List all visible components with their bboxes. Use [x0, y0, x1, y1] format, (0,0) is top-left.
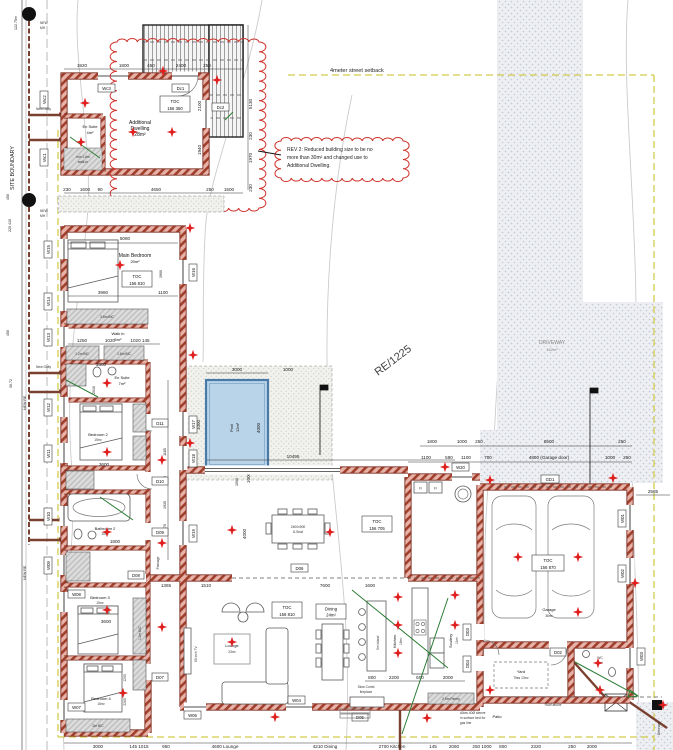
- svg-text:W07: W07: [72, 705, 81, 710]
- tag-dc1: Dc1: [172, 84, 189, 92]
- boundary-3072: 30.72: [9, 379, 13, 388]
- new-mh-top-2: MH: [40, 26, 46, 30]
- fireplace-unit: [350, 697, 384, 707]
- svg-text:156 870: 156 870: [540, 565, 556, 570]
- dim-230a: 230: [248, 132, 253, 140]
- tag-wc2: Wc2: [40, 91, 48, 108]
- main-bedroom-area: 20m²: [130, 259, 140, 264]
- tag-w19: W19: [189, 525, 197, 542]
- sewer-stubs: [29, 115, 61, 540]
- tag-w20: W20: [452, 463, 469, 471]
- svg-text:D11: D11: [156, 421, 164, 426]
- dim-b-4600: 4600 Lounge: [212, 744, 239, 749]
- rev-note-line3: Additional Dwelling.: [287, 163, 331, 169]
- dim-1920: 1920: [77, 63, 88, 68]
- walkin-area: 5m²: [115, 337, 123, 342]
- dim-10495: 10495: [287, 454, 300, 459]
- bed2-robe: [133, 436, 146, 460]
- dim-7600: 7600: [320, 583, 331, 588]
- new-mh-top-1: NEW: [40, 21, 49, 25]
- tag-d11: D11: [152, 419, 168, 427]
- dwelling-walkin-2: walk-in: [78, 160, 88, 164]
- svg-text:W08: W08: [72, 592, 81, 597]
- svg-text:D05: D05: [356, 715, 364, 720]
- boundary-450a: 450: [6, 194, 10, 200]
- garage-area: 36m²: [545, 614, 553, 618]
- great-room: 1365 1510 7600 1600 4000 1000 2400x900 8…: [161, 478, 502, 734]
- svg-text:W17: W17: [191, 419, 196, 428]
- driveway-apron: [480, 302, 663, 483]
- dim-1510: 1510: [201, 583, 212, 588]
- svg-text:W10: W10: [46, 511, 51, 520]
- floor-plan-drawing: DRIVEWAY 162m² 4meter street setback 122…: [0, 0, 673, 750]
- new-gully-note-b: New Gully: [36, 365, 51, 369]
- tag-w18: W18: [189, 450, 197, 467]
- dim-pool-4000: 4000: [256, 422, 261, 433]
- island-label: 5m Island: [376, 636, 380, 650]
- new-re-label-b: NEW RE: [23, 565, 27, 580]
- fireplace-label-2: fireplace: [360, 690, 373, 694]
- svg-text:156 810: 156 810: [129, 281, 145, 286]
- kitchen-counter: [412, 588, 428, 674]
- dim-gar-1800: 1800: [427, 439, 438, 444]
- toc-box-garage: TOC 156 870: [532, 555, 564, 571]
- tag-d10: D10: [152, 477, 168, 485]
- dim-gar-8500: 8500: [544, 439, 555, 444]
- manhole-mid: [22, 193, 36, 207]
- site-boundary-label: SITE BOUNDARY: [10, 146, 16, 190]
- svg-text:W15: W15: [46, 244, 51, 253]
- svg-text:D09: D09: [156, 530, 164, 535]
- svg-text:TOC: TOC: [283, 605, 292, 610]
- tag-wc1: Wc1: [40, 149, 48, 166]
- svg-text:TOC: TOC: [171, 99, 180, 104]
- toc-box-main: TOC 156 810: [122, 271, 152, 287]
- tag-w13: W13: [44, 329, 52, 346]
- dim-230b: 230: [248, 184, 253, 192]
- bathroom2-label: Bathroom 2: [95, 526, 116, 531]
- svg-text:W03: W03: [639, 651, 644, 660]
- dim-kit-2200: 2200: [389, 675, 400, 680]
- ensuite-toilet: [93, 367, 101, 377]
- patio-label: Patio: [492, 714, 502, 719]
- svg-text:W06: W06: [188, 713, 197, 718]
- dim-b-2060: 2060: [449, 744, 460, 749]
- scullery-sink: [455, 486, 471, 502]
- pool-area-label: 12m²: [235, 422, 240, 432]
- dim-5080: 5080: [120, 236, 131, 241]
- dim-3900: 3900: [159, 270, 163, 278]
- tag-d04: D04: [463, 656, 471, 672]
- bedroom4-area: 15m²: [97, 702, 105, 706]
- dim-b-145-1015: 145 1015: [129, 744, 149, 749]
- dim-b-800: 800: [499, 744, 507, 749]
- svg-text:TOC: TOC: [544, 558, 553, 563]
- dwelling-ensuite-2: 4m²: [87, 130, 95, 135]
- tag-w08: W08: [68, 590, 85, 598]
- dim-dwb-1500: 1500: [224, 187, 235, 192]
- dim-3980: 3980: [98, 290, 109, 295]
- bedroom2-label: Bedroom 2: [88, 432, 108, 437]
- dim-5130: 5130: [248, 98, 253, 109]
- svg-text:156 705: 156 705: [369, 526, 385, 531]
- roof-above-label: Roof above: [545, 703, 562, 707]
- svg-text:D03: D03: [465, 627, 470, 635]
- dim-1000-great: 1000: [235, 478, 239, 486]
- tag-gd1: GD1: [541, 475, 559, 483]
- dining-label-box: Dining 24m²: [316, 604, 346, 619]
- svg-text:GD1: GD1: [546, 477, 555, 482]
- dim-gar2-4800: 4800 (Garage door): [529, 455, 570, 460]
- walkway-strip: [58, 196, 224, 212]
- dim-2010: 2010: [92, 386, 96, 394]
- svg-text:Dc1: Dc1: [177, 86, 185, 91]
- bed2-linen: [133, 404, 146, 432]
- svg-text:Wc3: Wc3: [102, 86, 111, 91]
- dim-250: 250: [203, 63, 211, 68]
- boundary-length: 122.75m: [14, 16, 18, 30]
- tag-d02: D02: [550, 648, 566, 656]
- dim-dwb-1600: 1600: [80, 187, 91, 192]
- bed-3: [78, 606, 118, 654]
- svg-text:156 810: 156 810: [279, 612, 295, 617]
- tag-dc2: Dc2: [212, 103, 229, 111]
- dim-dwb-250: 250: [206, 187, 214, 192]
- dim-gar2-1100b: 1100: [461, 455, 471, 460]
- rev-note-line1: REV 2: Reduced building size to be no: [287, 147, 373, 153]
- bic-2m-label: 2m BIC: [93, 724, 105, 728]
- table-seat-label: 8-Seat: [293, 530, 303, 534]
- dim-1800-bath: 1800: [110, 539, 121, 544]
- yard-tile-area: [494, 662, 548, 688]
- dim-gar-250b: 250: [618, 439, 626, 444]
- dwelling-walkin-1: min 1.6m: [76, 155, 90, 159]
- gas-note-3: gas line: [460, 721, 472, 725]
- new-mh-mid-2: MH: [40, 214, 46, 218]
- tag-w06: W06: [184, 711, 201, 719]
- svg-text:W09: W09: [46, 560, 51, 569]
- bottom-dimensions: 3000 145 1015 950 4600 Lounge 4210 Dinin…: [64, 743, 632, 749]
- svg-text:W16: W16: [191, 267, 196, 276]
- dim-4000: 4000: [242, 528, 247, 539]
- svg-text:Wc1: Wc1: [42, 153, 47, 162]
- bed4-bic: [133, 660, 146, 690]
- shower-strip: [66, 471, 94, 489]
- dim-3600-bed2: 3600: [99, 462, 110, 467]
- new-mh-mid-1: NEW: [40, 209, 49, 213]
- stool-3: [359, 639, 366, 646]
- dim-b-950: 950: [162, 744, 170, 749]
- dim-b-3000: 3000: [93, 744, 104, 749]
- tag-w11: W11: [44, 445, 52, 462]
- tag-d03: D03: [463, 624, 471, 640]
- svg-text:W02: W02: [620, 568, 625, 577]
- dim-dwb-90: 90: [97, 187, 103, 192]
- dim-2585: 2585: [648, 489, 659, 494]
- bath-tub: [68, 494, 130, 521]
- dim-1020: 1020: [105, 338, 116, 343]
- svg-text:D07: D07: [156, 675, 164, 680]
- floor-plan-page: DRIVEWAY 162m² 4meter street setback 122…: [0, 0, 673, 750]
- bedroom4-label: Bedroom 4: [91, 696, 111, 701]
- bath-basin: [88, 531, 96, 539]
- svg-text:W13: W13: [46, 332, 51, 341]
- svg-text:W12: W12: [46, 402, 51, 411]
- tag-w03: W03: [637, 648, 645, 665]
- bed-main: [68, 240, 118, 302]
- tag-w02: W02: [618, 565, 626, 582]
- scullery-label: Scullery: [448, 634, 453, 648]
- ensuite-label: En Suite: [114, 375, 130, 380]
- dim-1600: 1600: [365, 583, 376, 588]
- dim-450: 450: [147, 63, 155, 68]
- dwelling-name-3: 28m²: [134, 132, 146, 138]
- tag-d09: D09: [152, 528, 168, 536]
- sofa-long: [222, 682, 288, 704]
- svg-text:156 350: 156 350: [167, 106, 183, 111]
- svg-text:D10: D10: [156, 479, 164, 484]
- passage-label: Passage: [156, 556, 160, 569]
- table-size-label: 2400x900: [291, 525, 306, 529]
- tag-w01: W01: [618, 510, 626, 527]
- dim-gar2-1100a: 1100: [421, 455, 431, 460]
- bath-toilet: [74, 529, 82, 539]
- dim-3300: 3300: [96, 362, 107, 367]
- pantry-label: 2.5m Pantry: [442, 697, 460, 701]
- stool-1: [359, 609, 366, 616]
- svg-text:W01: W01: [620, 513, 625, 522]
- toc-box-dwelling: TOC 156 350: [160, 96, 190, 112]
- dim-b-2000: 2000: [587, 744, 598, 749]
- armchair-1: [222, 603, 240, 612]
- armchair-2: [246, 603, 264, 612]
- lounge-area: 23m²: [228, 650, 236, 654]
- svg-text:D04: D04: [465, 659, 470, 667]
- dim-1020-145: 1020 145: [130, 338, 150, 343]
- rev-note-line2: more than 30m² and changed use to: [287, 155, 368, 161]
- tag-w04: W04: [288, 696, 305, 704]
- tag-d08: D08: [128, 571, 144, 579]
- dim-gar2-250: 250: [623, 455, 631, 460]
- dim-3600-bed3: 3600: [101, 619, 112, 624]
- scullery-area: 11m²: [455, 636, 459, 644]
- dim-dwb-4650: 4650: [151, 187, 162, 192]
- bedroom3-label: Bedroom 3: [90, 595, 110, 600]
- ensuite-basin: [108, 367, 116, 375]
- bedroom3-area: 15m²: [96, 601, 104, 605]
- tag-wc3: Wc3: [98, 84, 115, 92]
- pool-label: Pool: [229, 424, 234, 432]
- toc-box-living: TOC 156 705: [362, 516, 392, 532]
- tag-w15: W15: [44, 241, 52, 258]
- dim-b-250: 250: [568, 744, 576, 749]
- tag-w14: W14: [44, 293, 52, 310]
- svg-text:W14: W14: [46, 296, 51, 305]
- dim-2285: 2285: [123, 698, 127, 706]
- dining-table-8seat: [266, 509, 330, 549]
- dim-pool-1000a: 1000: [283, 367, 294, 372]
- stool-2: [359, 624, 366, 631]
- tv-label: 65 inch TV: [194, 645, 198, 662]
- dim-b-250-1000: 250 1000: [472, 744, 492, 749]
- side-table: [238, 612, 248, 622]
- tag-w07: W07: [68, 703, 85, 711]
- kitchen-area: 16m²: [399, 637, 403, 645]
- driveway-area: DRIVEWAY 162m²: [480, 0, 673, 750]
- svg-text:W04: W04: [292, 698, 301, 703]
- tag-w09: W09: [44, 557, 52, 574]
- tv-unit: [184, 628, 191, 674]
- driveway-area-label: 162m²: [546, 347, 558, 352]
- wc-basin: [583, 651, 590, 658]
- fireplace-label-1: Slow Comb: [358, 685, 375, 689]
- manhole-top: [22, 7, 36, 21]
- svg-text:24m²: 24m²: [326, 613, 336, 618]
- dim-gar-250a: 250: [475, 439, 483, 444]
- svg-text:TOC: TOC: [133, 274, 142, 279]
- bed3-bic: [133, 598, 146, 654]
- svg-text:W19: W19: [191, 528, 196, 537]
- bedroom2-area: 15m²: [94, 438, 102, 442]
- dim-kit-2000: 2000: [443, 675, 454, 680]
- yard-label: Yard: [517, 669, 525, 674]
- dim-2100: 2100: [197, 100, 202, 111]
- tag-d07: D07: [152, 673, 168, 681]
- dim-gar2-1000: 1000: [605, 455, 616, 460]
- dim-1100: 1100: [158, 290, 168, 295]
- svg-text:D08: D08: [132, 573, 140, 578]
- dim-gar2-590: 590: [445, 455, 453, 460]
- ensuite-shower: [66, 364, 86, 386]
- street-setback-label: 4meter street setback: [330, 68, 384, 74]
- svg-text:Dining: Dining: [325, 607, 338, 612]
- dim-east-1185: 1185: [163, 448, 167, 456]
- svg-text:TOC: TOC: [373, 519, 382, 524]
- walkin-label: Walk in: [112, 331, 125, 336]
- tag-w10: W10: [44, 508, 52, 525]
- gas-note-1: Allow 40Ø sleeve: [460, 711, 486, 715]
- dim-gar-1000: 1000: [457, 439, 468, 444]
- dim-b-145: 145: [429, 744, 437, 749]
- site-boundary: 122.75m SITE BOUNDARY 450 220 410 450 30…: [6, 0, 47, 750]
- kitchen-label: Kitchen: [392, 635, 397, 648]
- dim-kit-800: 800: [368, 675, 376, 680]
- dim-1200: 1200: [123, 674, 127, 682]
- dining-table-vertical: [316, 624, 349, 680]
- dim-b-2320: 2320: [531, 744, 542, 749]
- sofa-chaise: [266, 628, 288, 684]
- boundary-450b: 450: [6, 330, 10, 336]
- dim-1940: 1940: [197, 144, 202, 155]
- garage-label: Garage: [542, 607, 556, 612]
- svg-text:W18: W18: [191, 453, 196, 462]
- dwelling-ensuite-1: En Suite: [82, 124, 98, 129]
- dim-east-1935: 1935: [163, 501, 167, 509]
- new-re-label-a: NEW RE: [23, 395, 27, 410]
- gas-note-2: in surface bed for: [460, 716, 486, 720]
- bic-12-label: 1.2m BIC: [75, 352, 89, 356]
- driveway-side-note: Driveway: [657, 721, 661, 735]
- tag-d06: D06: [291, 564, 308, 572]
- svg-text:Wc2: Wc2: [42, 95, 47, 104]
- dim-1250: 1250: [77, 338, 88, 343]
- boundary-220-410: 220 410: [8, 219, 12, 232]
- dim-b-2700: 2700 Kitchen: [379, 744, 406, 749]
- dim-gar2-700: 700: [484, 455, 492, 460]
- dim-pool-3000: 3000: [232, 367, 243, 372]
- utility-counter: [66, 552, 90, 581]
- tag-w16: W16: [189, 264, 197, 281]
- tag-w12: W12: [44, 399, 52, 416]
- svg-text:D06: D06: [296, 566, 304, 571]
- svg-text:Dc2: Dc2: [217, 105, 225, 110]
- driveway-label: DRIVEWAY: [539, 340, 566, 346]
- dim-b-4210: 4210 Dining: [313, 744, 338, 749]
- toc-box-lounge: TOC 156 810: [272, 602, 302, 618]
- dwelling-walkin-shower: [64, 148, 102, 170]
- dim-dwb-230: 230: [63, 187, 71, 192]
- yard-area: Tiles 13m²: [513, 676, 529, 680]
- erf-number: RE/1225: [373, 343, 414, 378]
- ensuite-area: 7m²: [119, 381, 127, 386]
- svg-text:D02: D02: [554, 650, 562, 655]
- svg-text:W20: W20: [456, 465, 465, 470]
- dim-2400: 2400: [176, 63, 187, 68]
- bic-36-label: 3.6m BIC: [100, 315, 114, 319]
- bic-18-label: 1.8m BIC: [117, 352, 131, 356]
- bed3-bic-label: 1.2m BIC: [138, 626, 142, 640]
- wc-toilet: [609, 668, 616, 677]
- svg-text:W11: W11: [46, 449, 51, 458]
- dim-1365: 1365: [161, 583, 172, 588]
- tag-w17: W17: [189, 416, 197, 433]
- dim-1970: 1970: [248, 152, 253, 163]
- driveway-strip: [497, 0, 583, 302]
- stool-4: [359, 654, 366, 661]
- dim-1800: 1800: [119, 63, 130, 68]
